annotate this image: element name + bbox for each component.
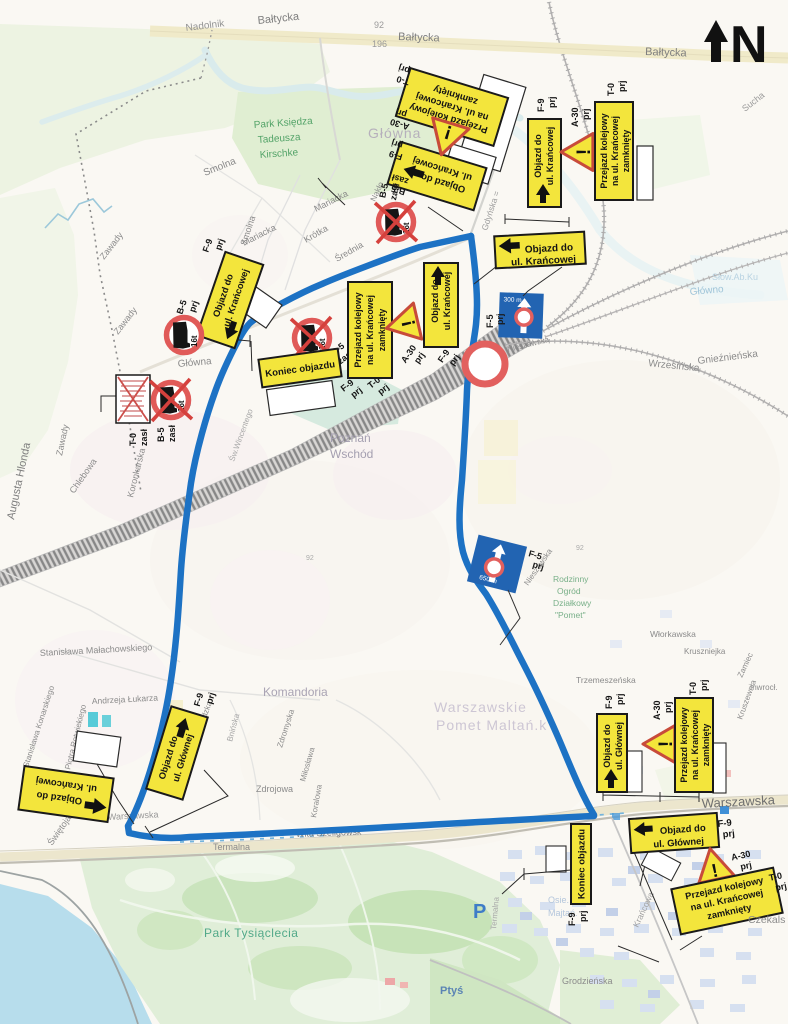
svg-text:na ul. Krańcowej: na ul. Krańcowej xyxy=(610,116,620,186)
svg-text:prj: prj xyxy=(495,313,505,325)
svg-text:Działkowy: Działkowy xyxy=(553,598,592,608)
svg-text:Poznań: Poznań xyxy=(330,431,371,445)
svg-text:prj: prj xyxy=(699,679,709,691)
svg-text:ul. Krańcowej: ul. Krańcowej xyxy=(545,127,555,186)
svg-text:Słow.Ab.Ku: Słow.Ab.Ku xyxy=(712,272,758,282)
svg-text:Bałtycka: Bałtycka xyxy=(645,46,688,59)
svg-text:prj: prj xyxy=(581,108,591,120)
svg-text:prj: prj xyxy=(722,828,735,840)
svg-text:92: 92 xyxy=(374,20,384,30)
svg-text:"Pomet": "Pomet" xyxy=(555,610,586,620)
svg-text:na ul. Krańcowej: na ul. Krańcowej xyxy=(365,295,375,365)
svg-text:Ptyś: Ptyś xyxy=(440,985,463,997)
svg-text:300 m: 300 m xyxy=(503,296,521,304)
svg-text:Komandoria: Komandoria xyxy=(263,685,328,699)
svg-text:92: 92 xyxy=(576,545,584,552)
svg-text:T-0: T-0 xyxy=(688,682,698,695)
svg-text:prj: prj xyxy=(578,910,588,922)
svg-text:Zdrojowa: Zdrojowa xyxy=(256,784,293,794)
svg-text:zasł: zasł xyxy=(167,424,177,442)
svg-text:Wschód: Wschód xyxy=(330,447,373,461)
svg-text:Przejazd kolejowy: Przejazd kolejowy xyxy=(679,707,689,782)
svg-text:Trzemeszeńska: Trzemeszeńska xyxy=(576,675,636,685)
svg-text:Warszawskie: Warszawskie xyxy=(434,699,527,715)
svg-text:prj: prj xyxy=(617,80,627,92)
svg-text:zamknięty: zamknięty xyxy=(701,724,711,767)
svg-text:ul. Głównej: ul. Głównej xyxy=(614,722,624,770)
svg-text:zamknięty: zamknięty xyxy=(621,130,631,173)
svg-text:Objazd do: Objazd do xyxy=(602,724,612,768)
svg-text:Park Tysiąclecia: Park Tysiąclecia xyxy=(204,926,298,940)
svg-text:A-30: A-30 xyxy=(570,107,580,127)
svg-text:Przejazd kolejowy: Przejazd kolejowy xyxy=(353,292,363,367)
svg-text:ul. Krańcowej: ul. Krańcowej xyxy=(442,272,452,331)
svg-text:Termalna: Termalna xyxy=(213,842,250,852)
svg-text:F-5: F-5 xyxy=(485,315,495,329)
svg-text:Bałtycka: Bałtycka xyxy=(398,31,441,44)
svg-text:F-9: F-9 xyxy=(536,99,546,113)
svg-text:T-0: T-0 xyxy=(128,433,138,446)
svg-text:Rodzinny: Rodzinny xyxy=(553,574,589,584)
svg-text:Objazd do: Objazd do xyxy=(533,134,543,178)
svg-text:Włorkawska: Włorkawska xyxy=(650,629,696,639)
svg-text:Objazd do: Objazd do xyxy=(430,279,440,323)
svg-text:prj: prj xyxy=(547,96,557,108)
svg-text:Ogród: Ogród xyxy=(557,586,581,596)
svg-text:Kruszniejka: Kruszniejka xyxy=(684,647,726,656)
svg-text:prj: prj xyxy=(663,701,673,713)
svg-text:Przejazd kolejowy: Przejazd kolejowy xyxy=(599,113,609,188)
svg-text:Czekals: Czekals xyxy=(748,914,785,926)
svg-text:Grodzieńska: Grodzieńska xyxy=(562,976,613,986)
svg-text:B-5: B-5 xyxy=(156,427,166,442)
svg-text:N: N xyxy=(730,16,768,74)
svg-text:T-0: T-0 xyxy=(606,83,616,96)
svg-text:zamknięty: zamknięty xyxy=(377,309,387,352)
svg-text:na ul. Krańcowej: na ul. Krańcowej xyxy=(690,710,700,780)
svg-text:Osie.: Osie. xyxy=(548,895,569,905)
svg-text:196: 196 xyxy=(372,39,387,49)
svg-text:A-30: A-30 xyxy=(652,700,662,720)
svg-text:prj: prj xyxy=(615,693,625,705)
svg-text:zasł: zasł xyxy=(139,428,149,446)
svg-text:92: 92 xyxy=(306,555,314,562)
svg-text:F-9: F-9 xyxy=(567,913,577,927)
svg-text:F-9: F-9 xyxy=(604,696,614,710)
svg-text:Pomet Maltań.k: Pomet Maltań.k xyxy=(436,717,547,733)
svg-text:Koniec objazdu: Koniec objazdu xyxy=(577,829,588,899)
svg-text:P: P xyxy=(473,901,486,923)
